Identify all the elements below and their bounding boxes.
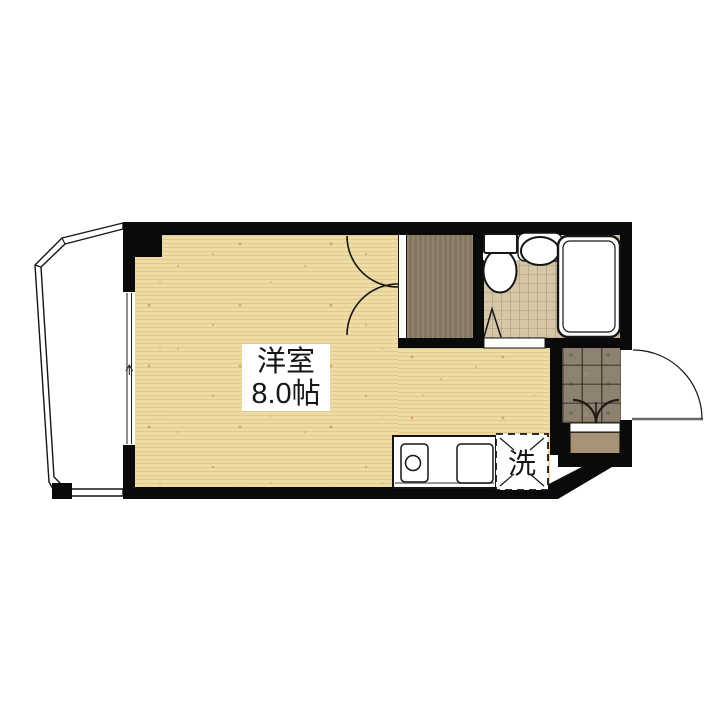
room-name: 洋室	[257, 346, 315, 378]
balcony-railing-icon	[35, 223, 123, 499]
window-icon	[126, 293, 133, 444]
genkan-threshold	[570, 423, 620, 432]
floor-plan: 洋室 8.0帖 洗	[0, 0, 720, 720]
room-area: 8.0帖	[251, 378, 320, 410]
entrance-door-swing-icon	[632, 350, 703, 419]
genkan-tiles	[562, 348, 621, 423]
entrance-step	[570, 432, 620, 454]
bathroom-floor	[483, 235, 620, 338]
closet	[407, 235, 473, 338]
room-size-label: 洋室 8.0帖	[242, 344, 330, 411]
laundry-space-label: 洗	[496, 434, 548, 490]
bathroom-threshold	[484, 338, 545, 348]
